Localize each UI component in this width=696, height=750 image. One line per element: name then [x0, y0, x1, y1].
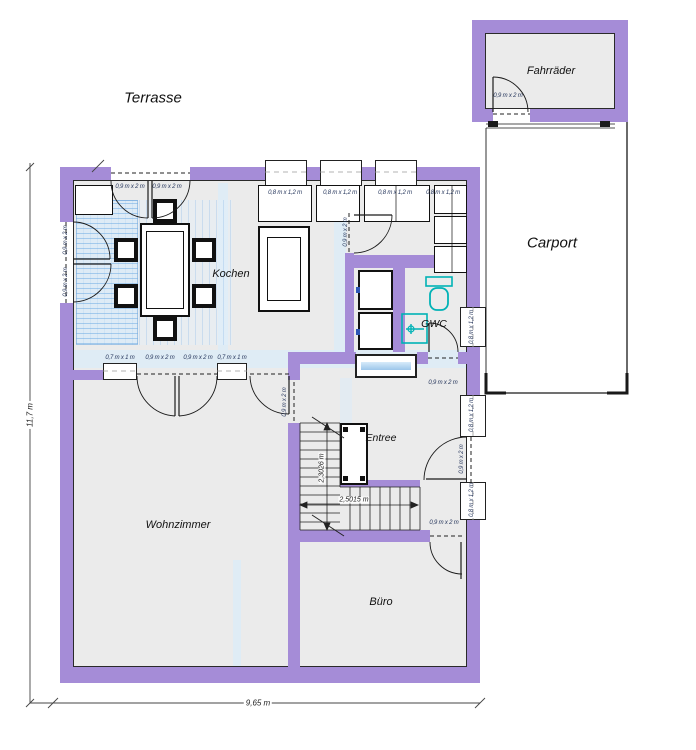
hall-closet-1[interactable] [358, 270, 393, 310]
window-glass [361, 362, 411, 370]
closet-handle-2 [356, 329, 360, 335]
size-label-entree-window-2: 0,8 m x 1,2 m [469, 483, 475, 517]
entree-cabinet-handle-3 [343, 476, 348, 481]
room-label-kochen: Kochen [212, 268, 249, 280]
wall-living-office [288, 542, 300, 667]
window-north-1[interactable] [265, 160, 307, 186]
axis-band-hall [340, 378, 352, 423]
dining-table[interactable] [140, 223, 190, 317]
chair-bottom[interactable] [153, 317, 177, 341]
bike-wall-bottom-2 [530, 109, 628, 122]
hall-closet-2[interactable] [358, 312, 393, 350]
room-label-terrasse: Terrasse [124, 90, 182, 107]
wall-left-lower [60, 303, 73, 683]
carport-boundary [486, 122, 627, 393]
size-label-terrace-door-1: 0,9 m x 2 m [115, 184, 144, 190]
wall-top-3 [307, 167, 320, 180]
kitchen-cabinet-col-2[interactable] [434, 216, 467, 244]
size-label-kitchen-door: 0,9 m x 2 m [343, 217, 349, 246]
size-label-left-door-2: 0,9 m x 2 m [63, 267, 69, 296]
bike-wall-left [472, 20, 485, 122]
size-label-living-door: 0,9 m x 2 m [282, 387, 288, 416]
kitchen-cabinet-col-3[interactable] [434, 246, 467, 273]
wall-top-4 [362, 167, 375, 180]
size-label-office-door: 0,9 m x 2 m [429, 520, 458, 526]
wall-entree-a [290, 352, 356, 364]
window-north-2[interactable] [320, 160, 362, 186]
size-label-gwc-window: 0,8 m x 1,2 m [469, 310, 475, 344]
dimension-total-width: 9,65 m [244, 699, 272, 708]
entree-cabinet-handle-4 [360, 476, 365, 481]
size-label-mid-window-2: 0,7 m x 1 m [217, 355, 246, 361]
window-mid-1[interactable] [103, 363, 137, 380]
wall-entree-b [417, 352, 428, 364]
wall-mid-left [60, 370, 103, 380]
wall-right-3 [467, 520, 480, 667]
wall-stair-left [288, 423, 300, 530]
window-entree-sill[interactable] [355, 354, 417, 378]
size-label-bike-door: 0,9 m x 2 m [493, 93, 522, 99]
window-north-3[interactable] [375, 160, 417, 186]
size-label-front-door: 0,9 m x 2 m [459, 444, 465, 473]
sideboard-carpet[interactable] [76, 200, 138, 345]
wall-gwc-left [393, 255, 405, 352]
wall-gwc-top [405, 255, 437, 268]
dimension-stair-run: 2,5015 m [338, 497, 369, 504]
entree-cabinet-handle-2 [360, 427, 365, 432]
corner-closet[interactable] [75, 185, 113, 215]
room-label-carport: Carport [527, 235, 577, 252]
wall-kitchen-v2 [345, 253, 354, 352]
axis-band-vertical-3 [233, 560, 241, 666]
wall-right-2 [467, 347, 480, 395]
wall-top-2 [190, 167, 265, 180]
wall-stair-bottom [288, 530, 430, 542]
wall-mid-right [288, 370, 300, 380]
bike-wall-right [615, 20, 628, 122]
wall-left-upper [60, 167, 73, 222]
dimension-total-height: 11,7 m [26, 401, 35, 429]
size-label-mid-window-1: 0,7 m x 1 m [105, 355, 134, 361]
closet-handle-1 [356, 287, 360, 293]
dining-table-top [146, 231, 184, 309]
size-label-window-n1: 0,8 m x 1,2 m [268, 190, 302, 196]
chair-left-1[interactable] [114, 238, 138, 262]
chair-right-1[interactable] [192, 238, 216, 262]
room-label-entree: Entree [366, 432, 397, 444]
chair-left-2[interactable] [114, 284, 138, 308]
size-label-terrace-door-2: 0,9 m x 2 m [152, 184, 181, 190]
chair-right-2[interactable] [192, 284, 216, 308]
size-label-gwc-door: 0,9 m x 2 m [428, 380, 457, 386]
room-label-gwc: GWC [421, 318, 447, 330]
floor-plan: Terrasse Fahrräder Carport Kochen GWC En… [0, 0, 696, 750]
size-label-left-door-1: 0,9 m x 2 m [63, 225, 69, 254]
bike-wall-bottom-1 [472, 109, 493, 122]
dimension-stair-flight: 2,3026 m [319, 452, 326, 483]
size-label-window-n2: 0,8 m x 1,2 m [323, 190, 357, 196]
wall-hall-h [354, 255, 393, 268]
size-label-mid-door-1: 0,9 m x 2 m [145, 355, 174, 361]
kitchen-counter-sink[interactable] [258, 226, 310, 312]
room-label-wohnzimmer: Wohnzimmer [146, 519, 211, 531]
room-label-fahrraeder: Fahrräder [527, 65, 575, 77]
size-label-mid-door-2: 0,9 m x 2 m [183, 355, 212, 361]
wall-right-1 [467, 167, 480, 307]
entree-cabinet-handle-1 [343, 427, 348, 432]
wall-entree-c [458, 352, 467, 364]
size-label-window-n4: 0,8 m x 1,2 m [426, 190, 460, 196]
wall-bottom [60, 667, 480, 683]
sink-basin [267, 237, 301, 301]
window-mid-2[interactable] [217, 363, 247, 380]
size-label-entree-window-1: 0,8 m x 1,2 m [469, 398, 475, 432]
chair-top[interactable] [153, 199, 177, 223]
room-label-buero: Büro [369, 596, 392, 608]
bike-wall-top [472, 20, 628, 33]
size-label-window-n3: 0,8 m x 1,2 m [378, 190, 412, 196]
